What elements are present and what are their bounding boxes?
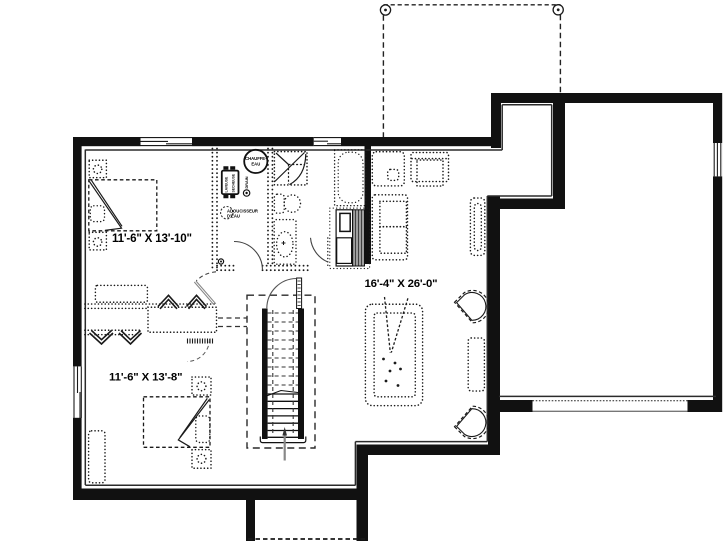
svg-text:SECHEUSE: SECHEUSE	[232, 173, 236, 192]
svg-text:11'-6" X 13'-10": 11'-6" X 13'-10"	[112, 232, 192, 245]
svg-text:11'-6" X 13'-8": 11'-6" X 13'-8"	[109, 371, 183, 383]
svg-text:DRAIN: DRAIN	[245, 176, 249, 188]
svg-text:16'-4" X 26'-0": 16'-4" X 26'-0"	[365, 278, 438, 290]
svg-text:D'EAU: D'EAU	[227, 213, 240, 218]
svg-text:EAU: EAU	[251, 161, 260, 166]
svg-text:LAVEUSE: LAVEUSE	[225, 176, 229, 193]
